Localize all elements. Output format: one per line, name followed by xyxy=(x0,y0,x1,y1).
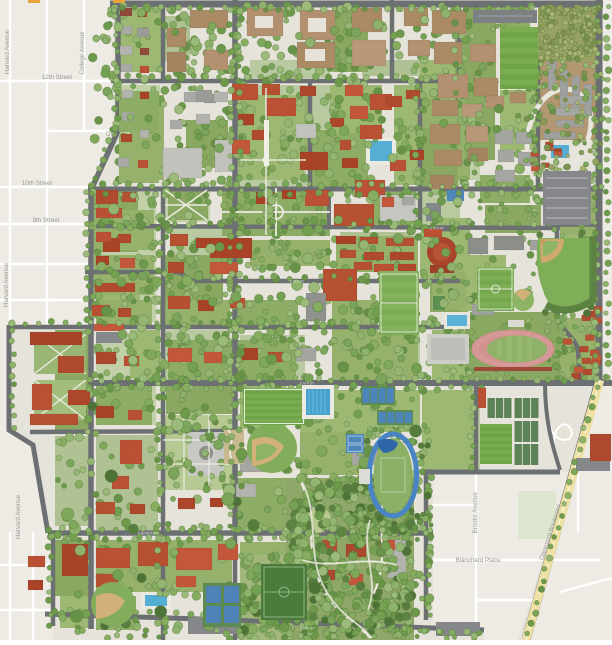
svg-text:9th Street: 9th Street xyxy=(33,217,60,224)
svg-text:College Avenue: College Avenue xyxy=(79,31,86,75)
svg-text:E 9TH ST: E 9TH ST xyxy=(430,227,444,231)
svg-text:Harvard Avenue: Harvard Avenue xyxy=(15,494,22,539)
svg-text:E BONITA AVE: E BONITA AVE xyxy=(138,532,159,536)
svg-text:E 8TH ST: E 8TH ST xyxy=(290,280,304,284)
svg-text:12th Street: 12th Street xyxy=(42,74,73,81)
svg-text:E 6TH ST: E 6TH ST xyxy=(300,382,314,386)
svg-text:Harvard Avenue: Harvard Avenue xyxy=(3,262,10,307)
svg-text:10th Street: 10th Street xyxy=(22,180,53,187)
svg-text:Harvard Avenue: Harvard Avenue xyxy=(4,29,11,74)
svg-text:E 2ND ST: E 2ND ST xyxy=(300,627,314,631)
svg-text:Dr: Dr xyxy=(106,131,113,138)
svg-text:Blanchard Place: Blanchard Place xyxy=(455,557,501,564)
svg-text:Brooks Avenue: Brooks Avenue xyxy=(472,491,479,533)
